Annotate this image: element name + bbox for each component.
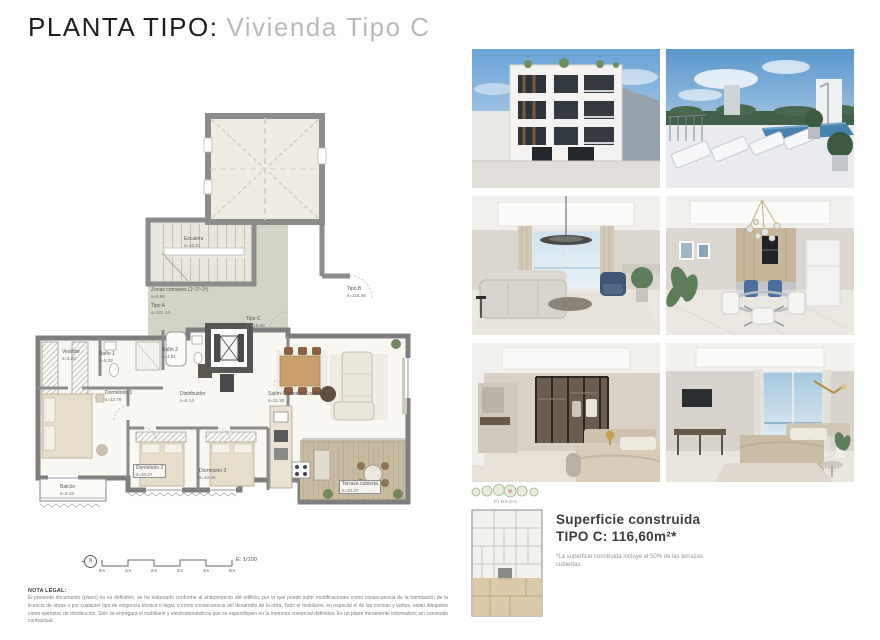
photo-facade-exterior	[472, 49, 660, 188]
room-label-dormitorio-2: Dormitorio 2s=10.27	[133, 464, 166, 478]
scale-label-2: 2m	[148, 568, 160, 573]
room-label-dormitorio-1: Dormitorio 1s=12.79	[105, 390, 132, 402]
scale-bar-graphic	[100, 554, 234, 568]
zone-label-tipo-a: Tipo As=121.14	[151, 303, 170, 315]
photo-bedroom-dressing	[472, 343, 660, 482]
scale-label-3: 3m	[174, 568, 186, 573]
photo-rooftop-solarium	[666, 49, 854, 188]
room-label-vestidor: Vestidors=4.20	[62, 349, 80, 361]
keyplan-drawing	[468, 508, 546, 618]
living-room-illustration	[472, 196, 660, 335]
surface-summary-heading: Superficie construida	[556, 512, 786, 529]
bedroom-dressing-illustration	[472, 343, 660, 482]
zone-label-zonas-comunes: Zonas comunes (1º-2º-3º)s=6.96	[151, 287, 208, 299]
keyplan-trees-icon	[468, 484, 546, 498]
scale-ratio: E: 1/100	[236, 557, 257, 563]
page-title-sub: Vivienda Tipo C	[226, 12, 430, 42]
zone-label-tipo-c: Tipo Cs=116.60	[246, 316, 265, 328]
room-label-bano-2: Baño 2s=4.81	[162, 347, 178, 359]
room-label-distribuidor: Distribuidors=8.14	[180, 391, 205, 403]
zone-label-tipo-b: Tipo Bs=116.48	[347, 286, 366, 298]
room-label-dormitorio-3: Dormitorio 3s=10.44	[199, 468, 226, 480]
bedroom-views-illustration	[666, 343, 854, 482]
keyplan-title: PINADA	[466, 499, 546, 504]
facade-illustration	[472, 49, 660, 188]
room-label-terraza-cubierta: Terraza cubiertas=10.27	[339, 480, 381, 494]
page-title-main: PLANTA TIPO:	[28, 12, 218, 42]
surface-summary-footnote: *La superficie construida incluye el 50%…	[556, 553, 706, 570]
room-label-bano-1: Baño 1s=5.32	[99, 351, 115, 363]
north-arrow-icon: N	[84, 555, 97, 568]
scale-label-1: 1m	[122, 568, 134, 573]
zone-label-escalera: Escaleras=10.21	[184, 236, 203, 248]
surface-summary-value: TIPO C: 116,60m²*	[556, 529, 786, 546]
rooftop-illustration	[666, 49, 854, 188]
room-label-balcon: Balcóns=2.18	[60, 484, 75, 496]
room-label-salon-comedor-cocina: Salón-Comedor-Cocinas=31.90	[268, 391, 320, 403]
photo-bedroom-views	[666, 343, 854, 482]
page-title: PLANTA TIPO:Vivienda Tipo C	[28, 12, 431, 43]
legal-note-body: El presente documento (plano) no es defi…	[28, 595, 448, 626]
legal-note: NOTA LEGAL: El presente documento (plano…	[28, 588, 448, 626]
dining-kitchen-illustration	[666, 196, 854, 335]
scale-label-5: 5m	[226, 568, 238, 573]
floor-plan-drawing	[28, 106, 428, 516]
scale-label-0: 0m	[96, 568, 108, 573]
photo-living-room	[472, 196, 660, 335]
legal-note-heading: NOTA LEGAL:	[28, 588, 448, 594]
brochure-page: PLANTA TIPO:Vivienda Tipo C	[0, 0, 880, 640]
scale-label-4: 4m	[200, 568, 212, 573]
surface-summary: Superficie construida TIPO C: 116,60m²* …	[556, 512, 786, 570]
scale-bar: N 0m 1m 2m 3m 4m 5m E: 1/100	[84, 552, 274, 580]
photo-dining-kitchen	[666, 196, 854, 335]
